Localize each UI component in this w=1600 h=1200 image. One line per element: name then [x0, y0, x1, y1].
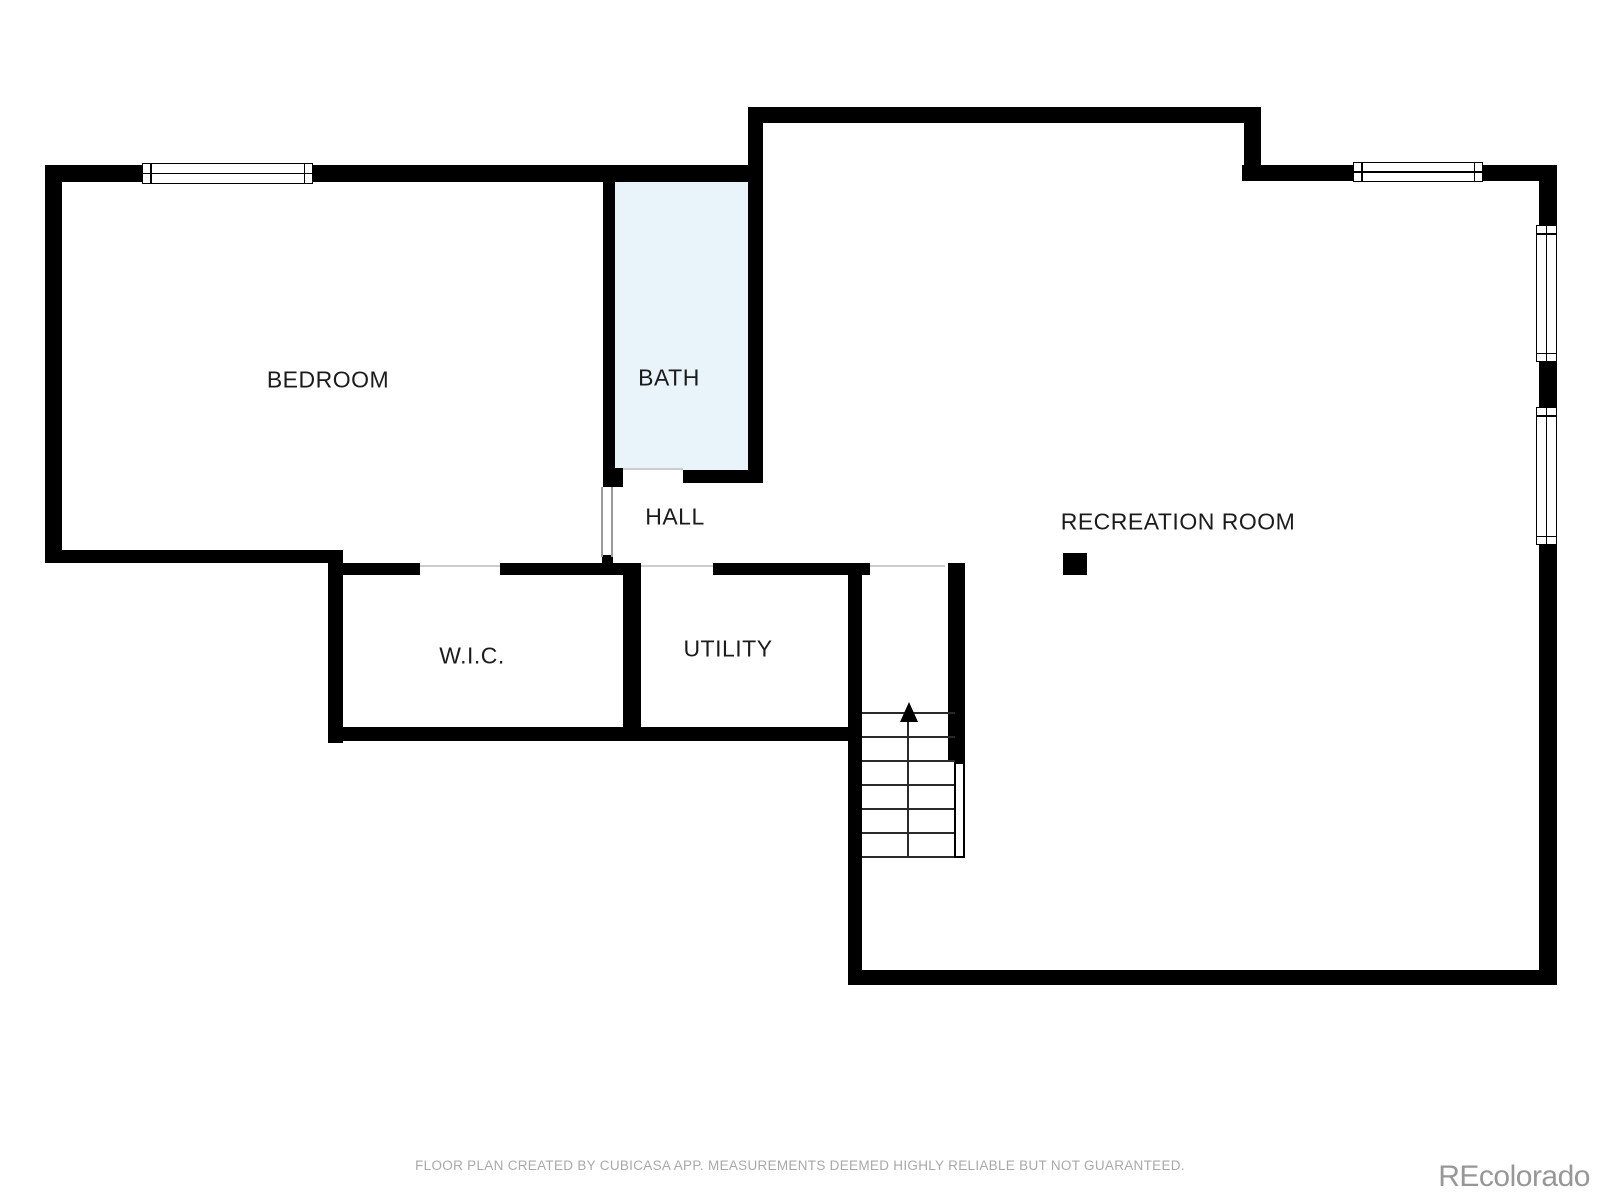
wall [45, 165, 62, 562]
wall [948, 563, 965, 762]
wall [683, 470, 763, 483]
wall [603, 178, 615, 470]
stair-tread [862, 856, 955, 858]
window-recreation-right-lower [1536, 407, 1557, 545]
room-label-bedroom: BEDROOM [267, 367, 389, 394]
stair-tread [862, 832, 955, 834]
door-opening-wic [420, 565, 500, 567]
stair-tread [862, 808, 955, 810]
wall [343, 563, 420, 575]
wall [748, 107, 1260, 123]
stair-direction-line [907, 712, 909, 858]
footer-disclaimer: FLOOR PLAN CREATED BY CUBICASA APP. MEAS… [0, 1158, 1600, 1173]
watermark-recolorado: REcolorado [1438, 1160, 1590, 1194]
wall [1539, 362, 1557, 407]
bath-floor-fill [615, 181, 748, 470]
stair-tread [862, 760, 955, 762]
stair-tread [862, 784, 955, 786]
door-opening-bath [623, 468, 683, 470]
room-label-wic: W.I.C. [439, 643, 505, 670]
passage-bedroom-hall [601, 487, 613, 557]
wall [748, 107, 763, 470]
floor-plan: BEDROOM BATH HALL W.I.C. UTILITY RECREAT… [0, 0, 1600, 1200]
wall [713, 563, 870, 575]
wall [500, 563, 641, 575]
window-recreation-right-upper [1536, 225, 1557, 362]
wall [45, 550, 343, 563]
wall [328, 550, 343, 743]
wall [1483, 165, 1557, 181]
wall [603, 468, 623, 487]
wall [328, 727, 862, 741]
window-recreation-top [1353, 162, 1483, 182]
structural-column [1063, 553, 1087, 575]
wall [848, 563, 862, 985]
window-bedroom-top [142, 163, 313, 184]
stair-tread [862, 736, 955, 738]
wall [313, 165, 748, 182]
door-opening-utility [641, 565, 713, 567]
room-label-bath: BATH [638, 365, 700, 392]
room-label-recreation: RECREATION ROOM [1061, 509, 1296, 536]
wall [1242, 165, 1353, 181]
wall [848, 970, 1557, 985]
wall [623, 563, 641, 727]
stair-rail [954, 762, 965, 858]
room-label-utility: UTILITY [683, 636, 772, 663]
stairs-up-arrow-icon [900, 702, 918, 722]
door-opening-stairs [870, 565, 945, 567]
wall [1539, 545, 1557, 985]
room-label-hall: HALL [645, 504, 705, 531]
